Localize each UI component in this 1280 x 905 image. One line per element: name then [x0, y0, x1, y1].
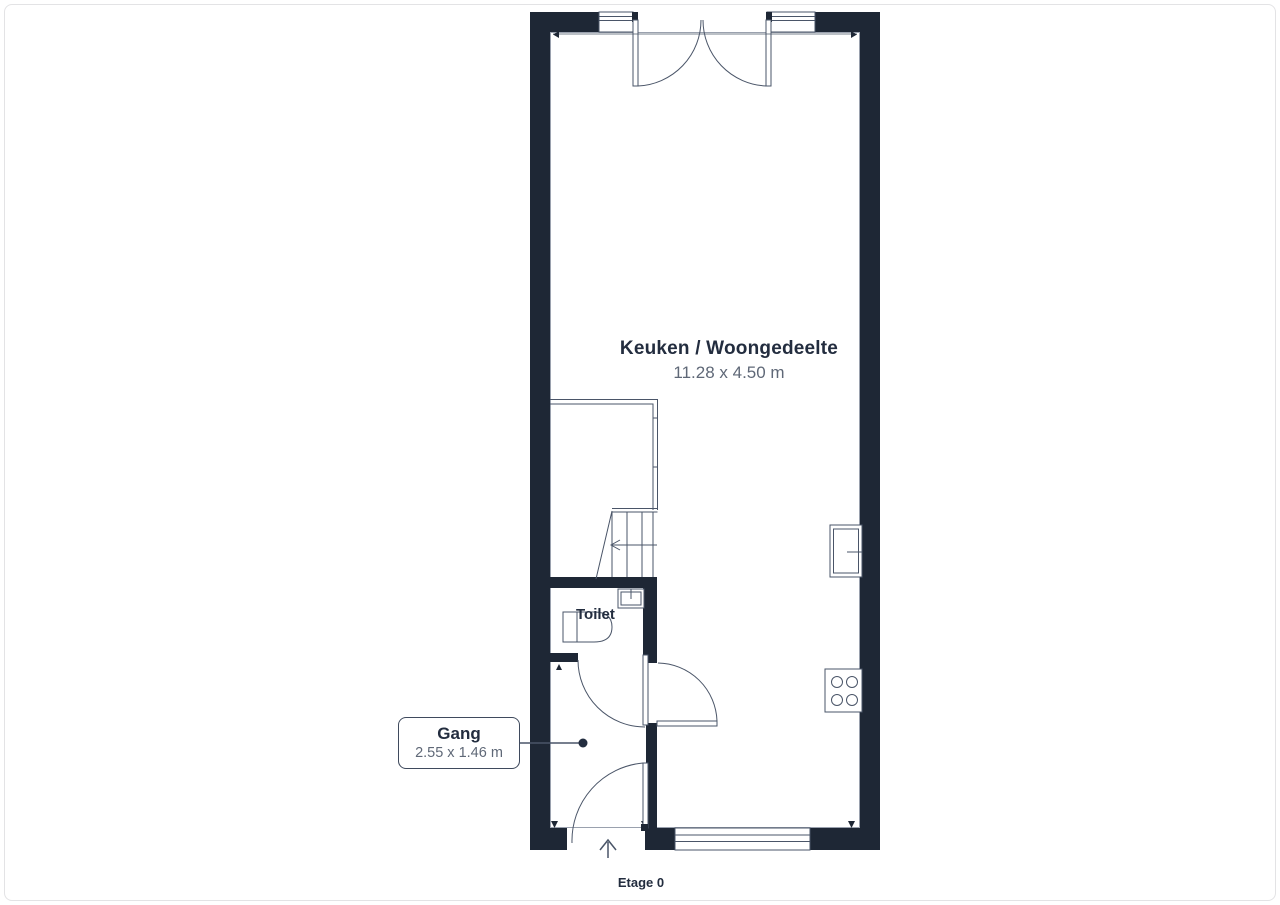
floorplan-canvas: Keuken / Woongedeelte 11.28 x 4.50 m Toi…: [0, 0, 1280, 905]
entrance-arrow: [600, 840, 616, 858]
room-label-keuken: Keuken / Woongedeelte 11.28 x 4.50 m: [559, 338, 899, 383]
measure-markers: [551, 31, 857, 828]
kitchen-door: [657, 663, 717, 726]
stove: [825, 669, 862, 712]
window-top-left: [599, 12, 633, 32]
room-callout-gang: Gang 2.55 x 1.46 m: [398, 717, 520, 769]
floorplan-drawing: [0, 0, 1280, 905]
toilet-sink: [618, 589, 644, 608]
room-dimensions: 11.28 x 4.50 m: [559, 363, 899, 383]
entry-double-door: [632, 12, 772, 86]
kitchen-sink: [830, 525, 862, 577]
room-label-toilet: Toilet: [576, 606, 615, 623]
floor-label: Etage 0: [561, 875, 721, 890]
stairs-walk-line: [611, 540, 657, 550]
gang-callout-line: [518, 739, 588, 748]
room-dimensions: 2.55 x 1.46 m: [415, 745, 503, 761]
staircase: [550, 400, 658, 580]
window-bottom: [675, 828, 810, 850]
front-door: [572, 763, 648, 843]
toilet-door: [578, 655, 648, 727]
room-name: Gang: [437, 725, 480, 744]
window-top-right: [767, 12, 815, 32]
stair-winder-line: [596, 511, 612, 579]
room-name: Keuken / Woongedeelte: [559, 338, 899, 360]
room-inner-outline: [551, 33, 860, 828]
